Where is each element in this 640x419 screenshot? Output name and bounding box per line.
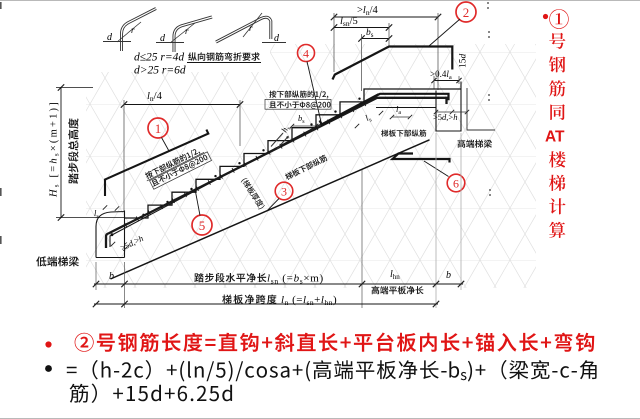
svg-text:b: b <box>109 271 114 282</box>
svg-text:1: 1 <box>155 121 162 136</box>
svg-text:6: 6 <box>453 177 459 191</box>
svg-text:d≤25 r=4d: d≤25 r=4d <box>134 52 184 64</box>
svg-text:3: 3 <box>281 185 287 199</box>
svg-text:4: 4 <box>303 47 309 61</box>
svg-text:r: r <box>185 26 189 36</box>
svg-text:r: r <box>249 23 253 33</box>
svg-text:r: r <box>131 25 135 35</box>
svg-text:b: b <box>446 270 451 281</box>
svg-text:15d: 15d <box>459 54 469 69</box>
svg-text:AT: AT <box>545 129 565 146</box>
svg-text:2: 2 <box>463 5 470 20</box>
svg-text:lsn/5: lsn/5 <box>340 16 358 28</box>
svg-text:d>25 r=6d: d>25 r=6d <box>134 65 186 77</box>
svg-text:5: 5 <box>199 218 206 233</box>
svg-text:>5d,>h: >5d,>h <box>433 112 457 122</box>
svg-text:ln/4: ln/4 <box>147 91 163 103</box>
